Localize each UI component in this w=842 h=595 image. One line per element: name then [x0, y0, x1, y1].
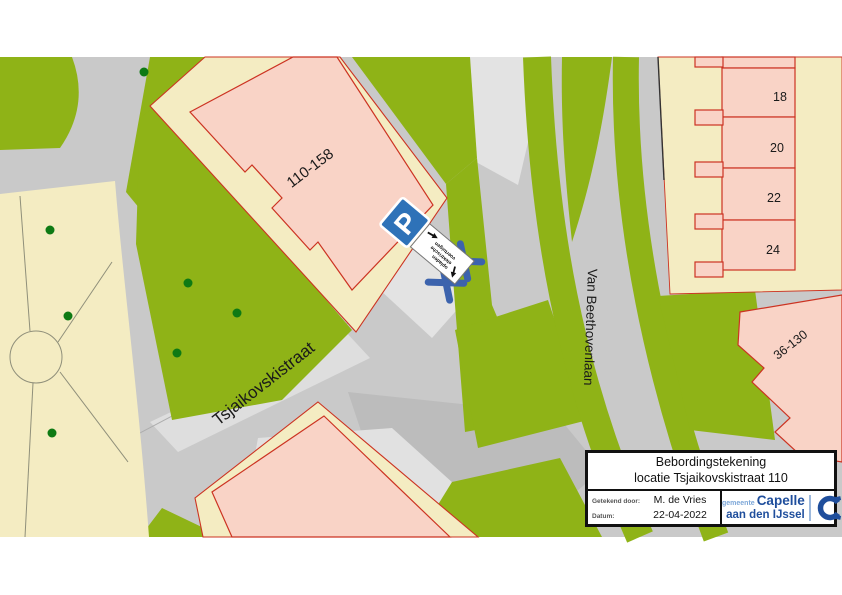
logo-name-line2: aan den IJssel — [722, 510, 805, 522]
house-20 — [722, 117, 795, 168]
capelle-c-icon — [815, 493, 842, 523]
house-number-22: 22 — [767, 191, 781, 205]
logo-divider — [809, 495, 811, 521]
title-block-meta: Getekend door: M. de Vries Datum: 22-04-… — [588, 491, 722, 524]
drawn-by-label: Getekend door: — [592, 498, 644, 505]
title-block-header: Bebordingstekening locatie Tsjaikovskist… — [588, 453, 834, 491]
logo-prefix: gemeente — [722, 500, 755, 507]
drawing-location: locatie Tsjaikovskistraat 110 — [634, 471, 788, 487]
house-number-18: 18 — [773, 90, 787, 104]
drawing-title: Bebordingstekening — [656, 455, 767, 471]
house-number-20: 20 — [770, 141, 784, 155]
drawn-by-value: M. de Vries — [644, 494, 716, 506]
date-value: 22-04-2022 — [644, 509, 716, 521]
municipality-logo: gemeenteCapelle aan den IJssel — [722, 491, 842, 524]
title-block: Bebordingstekening locatie Tsjaikovskist… — [585, 450, 837, 527]
house-number-24: 24 — [766, 243, 780, 257]
signage-drawing-page: Tsjaikovskistraat Van Beethovenlaan 110-… — [0, 0, 842, 595]
logo-name-line1: Capelle — [757, 493, 805, 508]
house-22 — [722, 168, 795, 220]
house-24 — [722, 220, 795, 270]
date-label: Datum: — [592, 513, 644, 520]
